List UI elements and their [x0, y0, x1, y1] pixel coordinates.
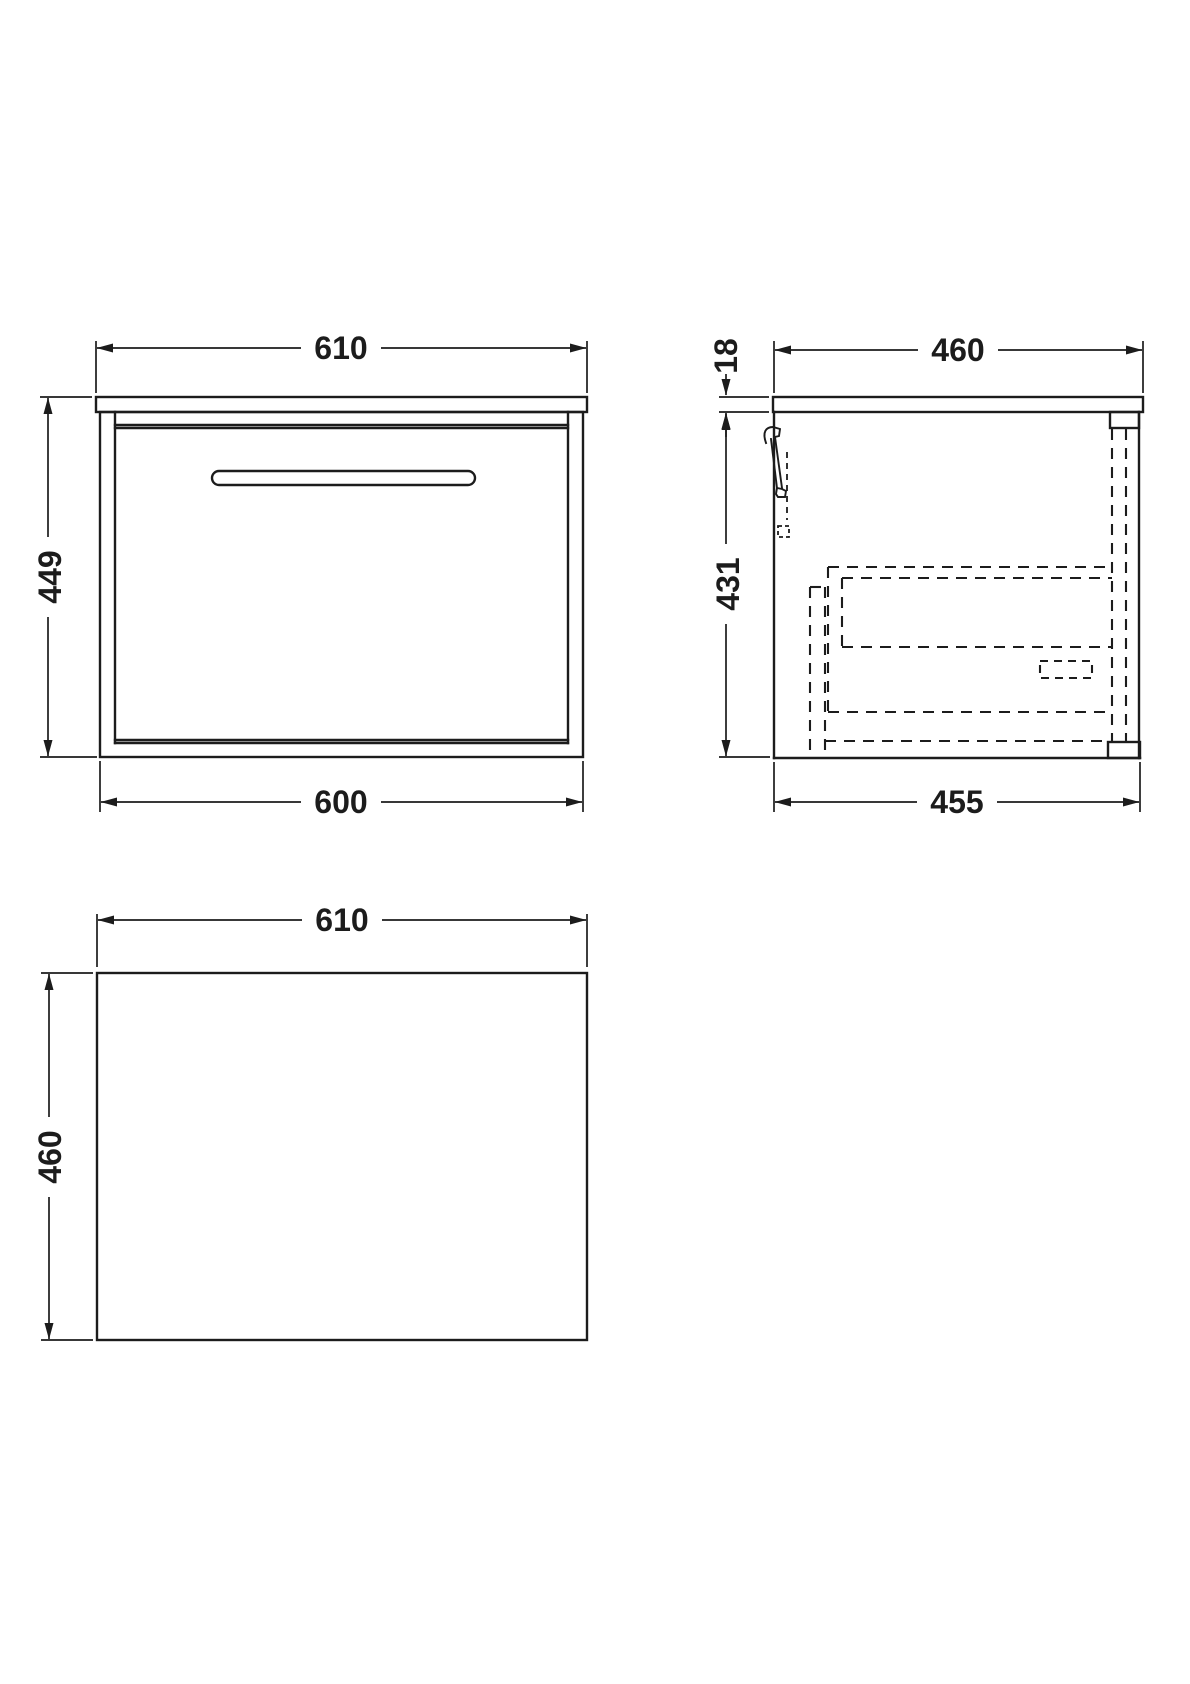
- side-worktop: [773, 397, 1143, 412]
- plan-width-label: 610: [315, 902, 368, 938]
- front-worktop: [96, 397, 587, 412]
- bracket-foot: [776, 488, 786, 497]
- front-width-top-label: 610: [314, 330, 367, 366]
- front-view: 610 449 600: [32, 330, 587, 820]
- side-dim-depth-bottom: 455: [774, 762, 1140, 820]
- front-dim-width-top: 610: [96, 330, 587, 393]
- bracket-hidden-plate: [778, 526, 789, 537]
- side-worktop-thickness-label: 18: [708, 338, 744, 374]
- technical-drawing-page: 610 449 600: [0, 0, 1190, 1684]
- plan-view: 610 460: [32, 902, 587, 1340]
- side-hidden-details: [810, 429, 1126, 756]
- side-dim-height-left: 431: [710, 413, 770, 757]
- front-width-bottom-label: 600: [314, 784, 367, 820]
- drawer-runner-hidden: [1040, 661, 1092, 678]
- side-view: 460 18 431 455: [708, 332, 1143, 820]
- drawer-handle: [212, 471, 475, 485]
- side-dim-worktop-thickness: 18: [708, 338, 769, 437]
- plan-dim-width-top: 610: [97, 902, 587, 967]
- hanging-bracket-icon: [764, 427, 789, 537]
- front-dim-width-bottom: 600: [100, 761, 583, 820]
- plan-depth-label: 460: [32, 1130, 68, 1183]
- side-height-label: 431: [710, 557, 746, 610]
- side-depth-top-label: 460: [931, 332, 984, 368]
- technical-drawing-canvas: 610 449 600: [0, 0, 1190, 1684]
- side-dim-depth-top: 460: [774, 332, 1143, 393]
- side-top-back-rail: [1110, 412, 1139, 428]
- side-bottom-back-rail: [1108, 742, 1140, 758]
- front-height-label: 449: [32, 550, 68, 603]
- side-depth-bottom-label: 455: [930, 784, 983, 820]
- plan-dim-depth-left: 460: [32, 973, 93, 1340]
- front-dim-height-left: 449: [32, 397, 97, 757]
- front-cabinet-outline: [100, 412, 583, 757]
- plan-outline: [97, 973, 587, 1340]
